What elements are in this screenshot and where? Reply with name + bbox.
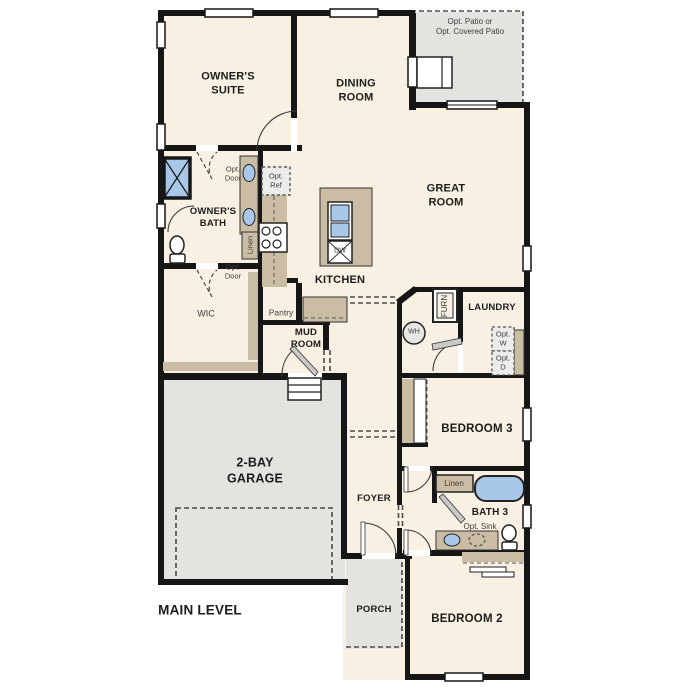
window-dining-patio — [408, 57, 417, 87]
bedroom2-closet-shelf — [462, 552, 524, 562]
wall-suite-bottom — [158, 145, 302, 151]
annotation-opt-w: Opt. W — [496, 330, 510, 349]
window-greatroom-right — [523, 246, 531, 271]
wall-bedroom2-left — [405, 555, 410, 680]
plan-title: MAIN LEVEL — [158, 603, 242, 620]
bedroom3-closet-shelf — [402, 379, 414, 443]
window-bath3-right — [523, 505, 531, 528]
annotation-dw: DW — [334, 248, 346, 257]
wall-foyer-east-a — [397, 470, 402, 505]
room-label-kitchen: KITCHEN — [315, 274, 365, 288]
door-leaf-bedroom2 — [404, 530, 408, 555]
room-label-laundry: LAUNDRY — [468, 302, 516, 314]
window-bedroom2-bottom — [445, 673, 483, 681]
annotation-wh: WH — [408, 329, 420, 338]
room-label-bath3: BATH 3 — [472, 507, 509, 520]
sink-icon-owners-1 — [243, 165, 255, 182]
toilet-icon-owners — [170, 236, 184, 254]
room-label-great-room: GREAT ROOM — [427, 182, 466, 210]
wic-shelving-right — [248, 272, 258, 360]
room-label-owners-suite: OWNER'S SUITE — [201, 70, 255, 98]
room-label-mud-room: MUD ROOM — [291, 327, 321, 351]
window-bedroom3-right — [523, 408, 531, 441]
patio-fireplace — [417, 57, 452, 88]
room-label-foyer: FOYER — [357, 493, 391, 505]
porch-area — [346, 557, 402, 649]
room-label-wic: WIC — [197, 308, 215, 319]
door-leaf-bedroom3 — [404, 467, 408, 492]
annotation-opt-d: Opt. D — [496, 354, 510, 373]
annotation-opt-door-1: Opt. Door — [225, 165, 241, 184]
sink-icon-owners-2 — [243, 209, 255, 226]
bedroom2-closet-door-1 — [470, 567, 506, 572]
door-leaf-front — [361, 522, 365, 555]
room-label-garage: 2-BAY GARAGE — [227, 455, 283, 486]
toilet-icon-bath3 — [502, 525, 516, 541]
sink-icon-bath3 — [444, 534, 460, 546]
stove-icon — [259, 223, 287, 252]
annotation-opt-door-2: Opt. Door — [225, 263, 241, 282]
wall-garage-bottom — [158, 579, 348, 585]
bathtub-icon — [475, 476, 524, 501]
annotation-opt-ref: Opt. Ref — [269, 172, 283, 191]
annotation-opt-sink: Opt. Sink — [464, 522, 497, 532]
room-label-porch: PORCH — [356, 604, 391, 616]
window-bath-left — [157, 204, 165, 228]
room-label-bedroom2: BEDROOM 2 — [431, 612, 502, 626]
wall-pantry-right — [296, 283, 302, 325]
annotation-furn: FURN — [440, 295, 450, 317]
wall-right — [524, 102, 530, 680]
wall-mudroom-right — [323, 320, 329, 350]
wic-shelving-bottom — [163, 362, 258, 371]
annotation-opt-patio: Opt. Patio or Opt. Covered Patio — [436, 17, 504, 37]
annotation-linen-bath3: Linen — [444, 479, 464, 489]
wall-laundry-left — [458, 292, 463, 342]
garage-steps — [288, 378, 321, 400]
bedroom3-closet-door — [414, 379, 426, 443]
floor-plan-page: OWNER'S SUITE DINING ROOM GREAT ROOM OWN… — [0, 0, 687, 687]
room-label-pantry: Pantry — [269, 308, 294, 319]
window-dining-top — [330, 9, 378, 17]
room-label-dining-room: DINING ROOM — [336, 77, 376, 105]
wall-garage-right — [341, 378, 347, 559]
laundry-counter — [514, 330, 524, 375]
room-label-bedroom3: BEDROOM 3 — [441, 422, 512, 436]
window-suite-left-2 — [157, 124, 165, 150]
wall-left — [158, 10, 164, 585]
window-suite-left-1 — [157, 22, 165, 48]
annotation-linen-owners: Linen — [245, 236, 254, 254]
window-suite-top — [205, 9, 253, 17]
wall-suite-dining — [291, 10, 297, 120]
room-label-owners-bath: OWNER'S BATH — [190, 206, 236, 230]
wall-foyer-east-b — [397, 528, 402, 555]
bedroom2-closet-door-2 — [482, 572, 514, 577]
